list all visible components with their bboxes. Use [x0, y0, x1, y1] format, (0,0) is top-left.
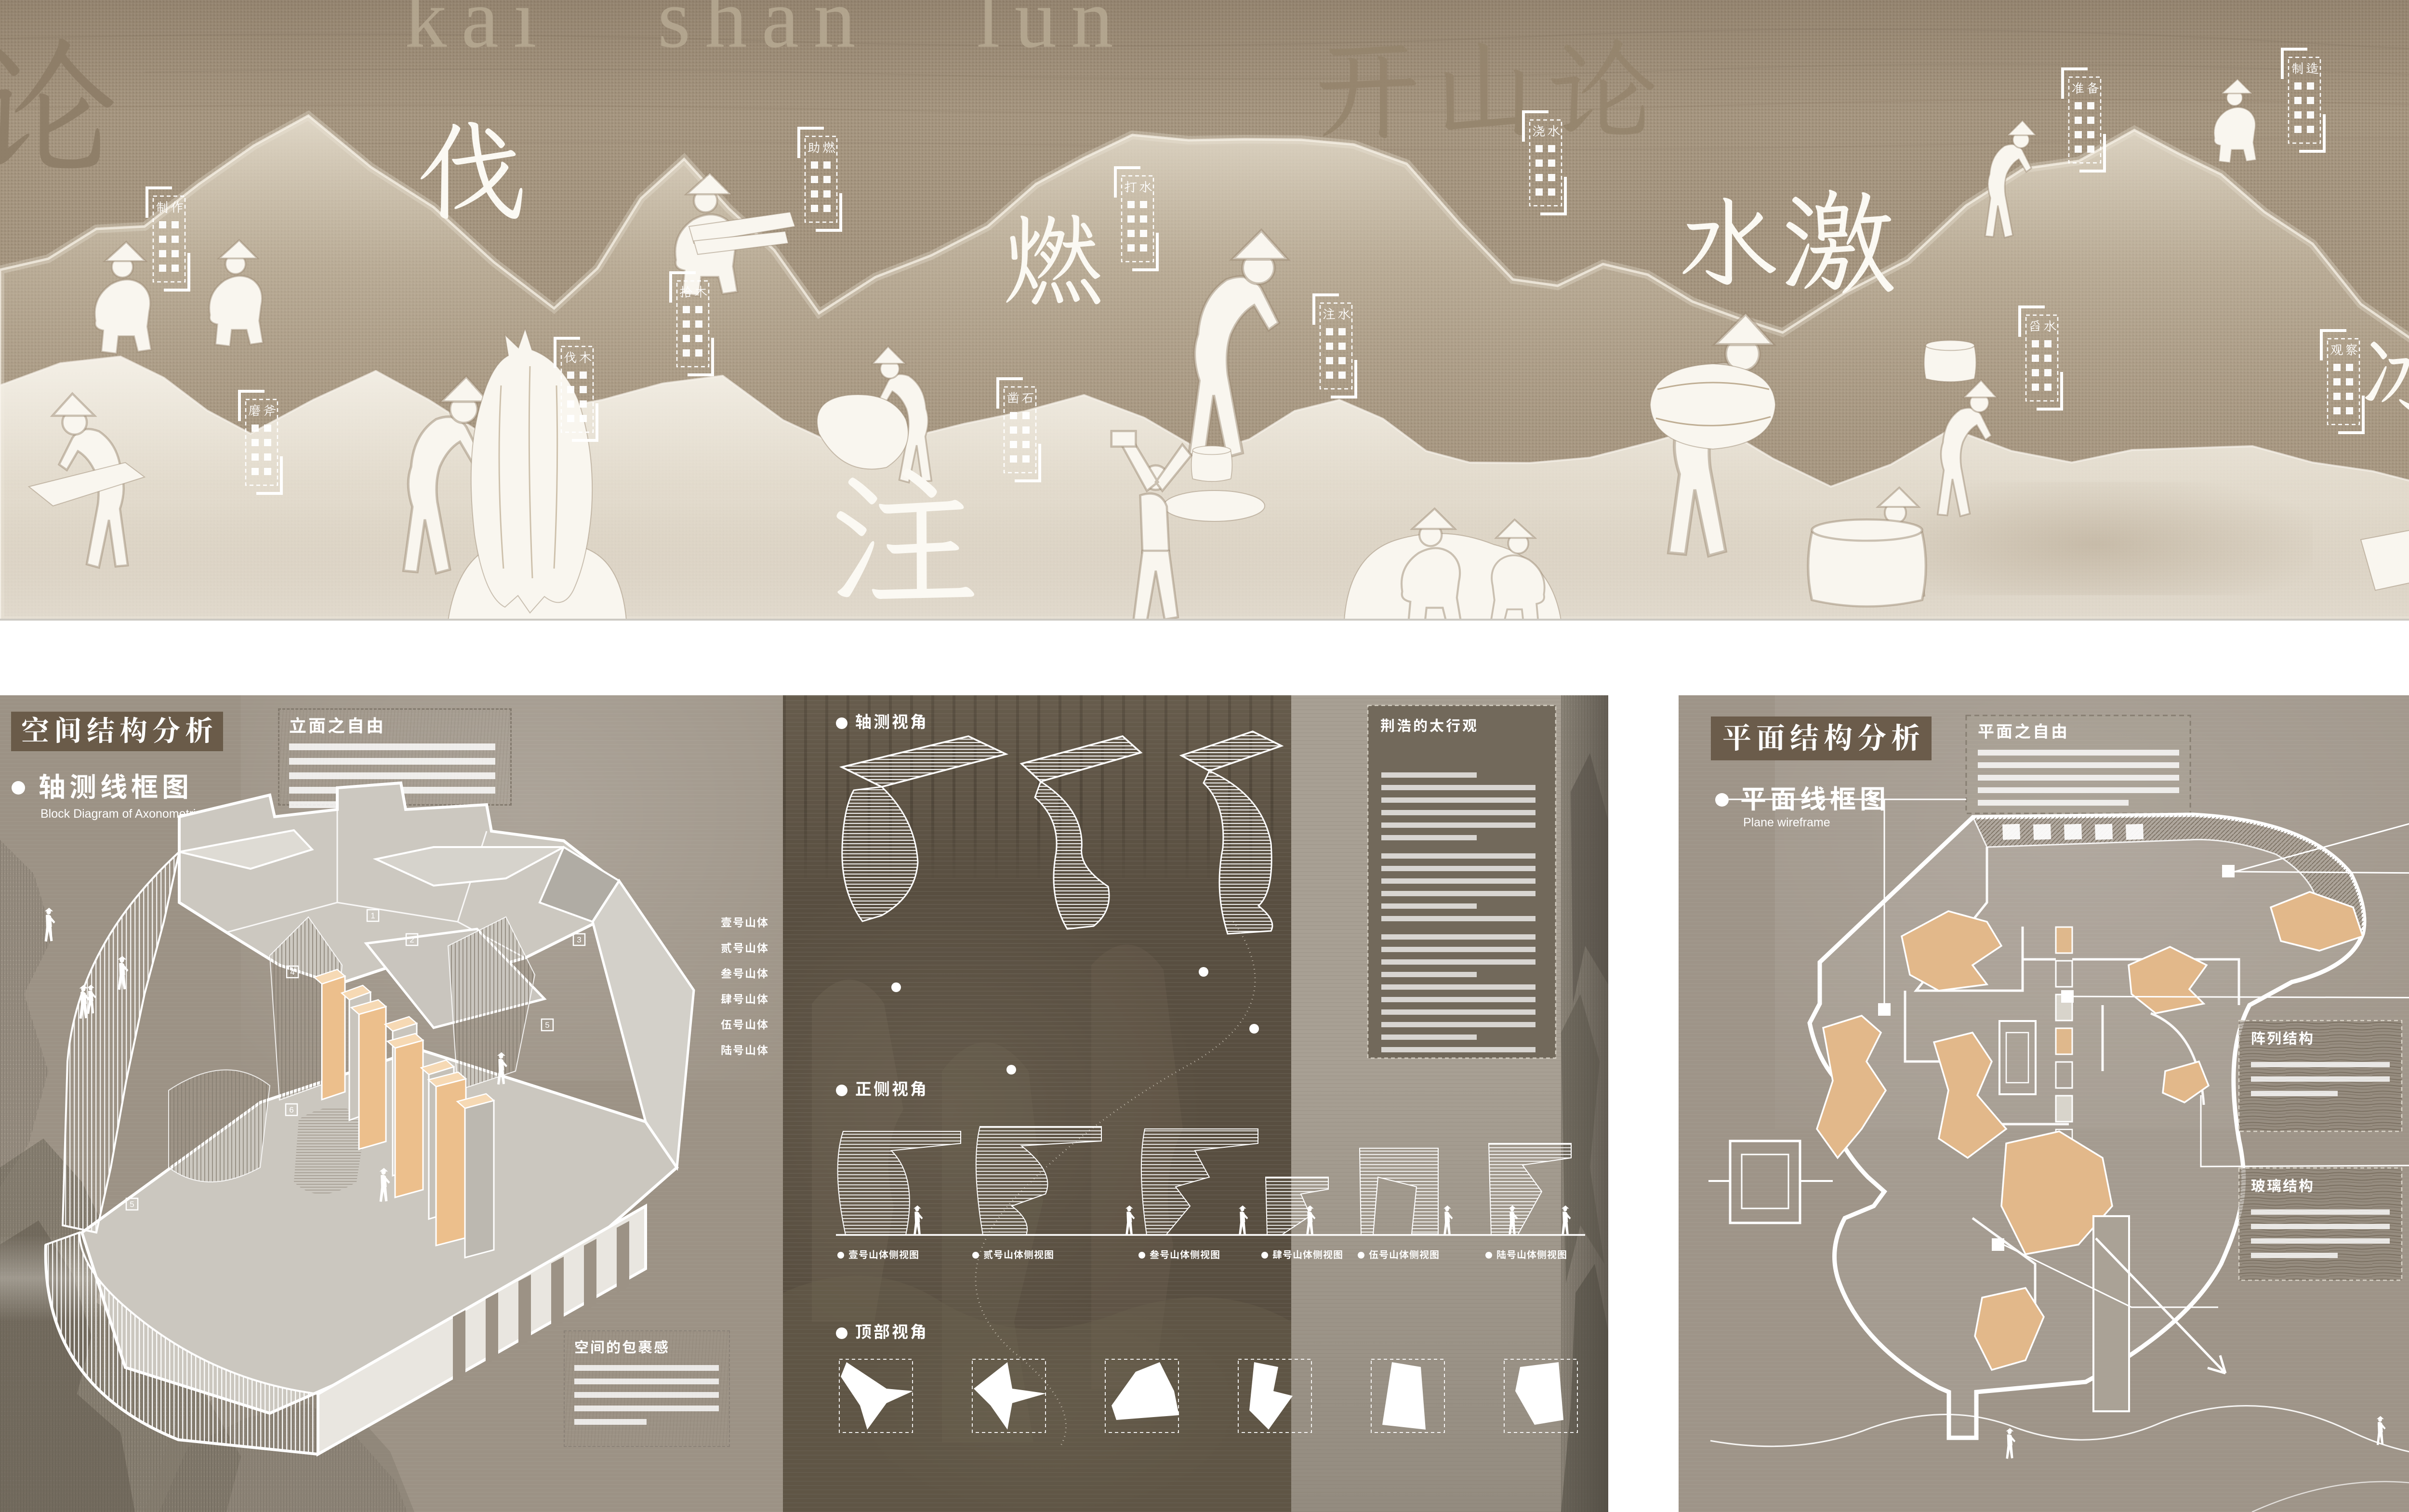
svg-text:Plane wireframe: Plane wireframe [1743, 816, 1830, 829]
